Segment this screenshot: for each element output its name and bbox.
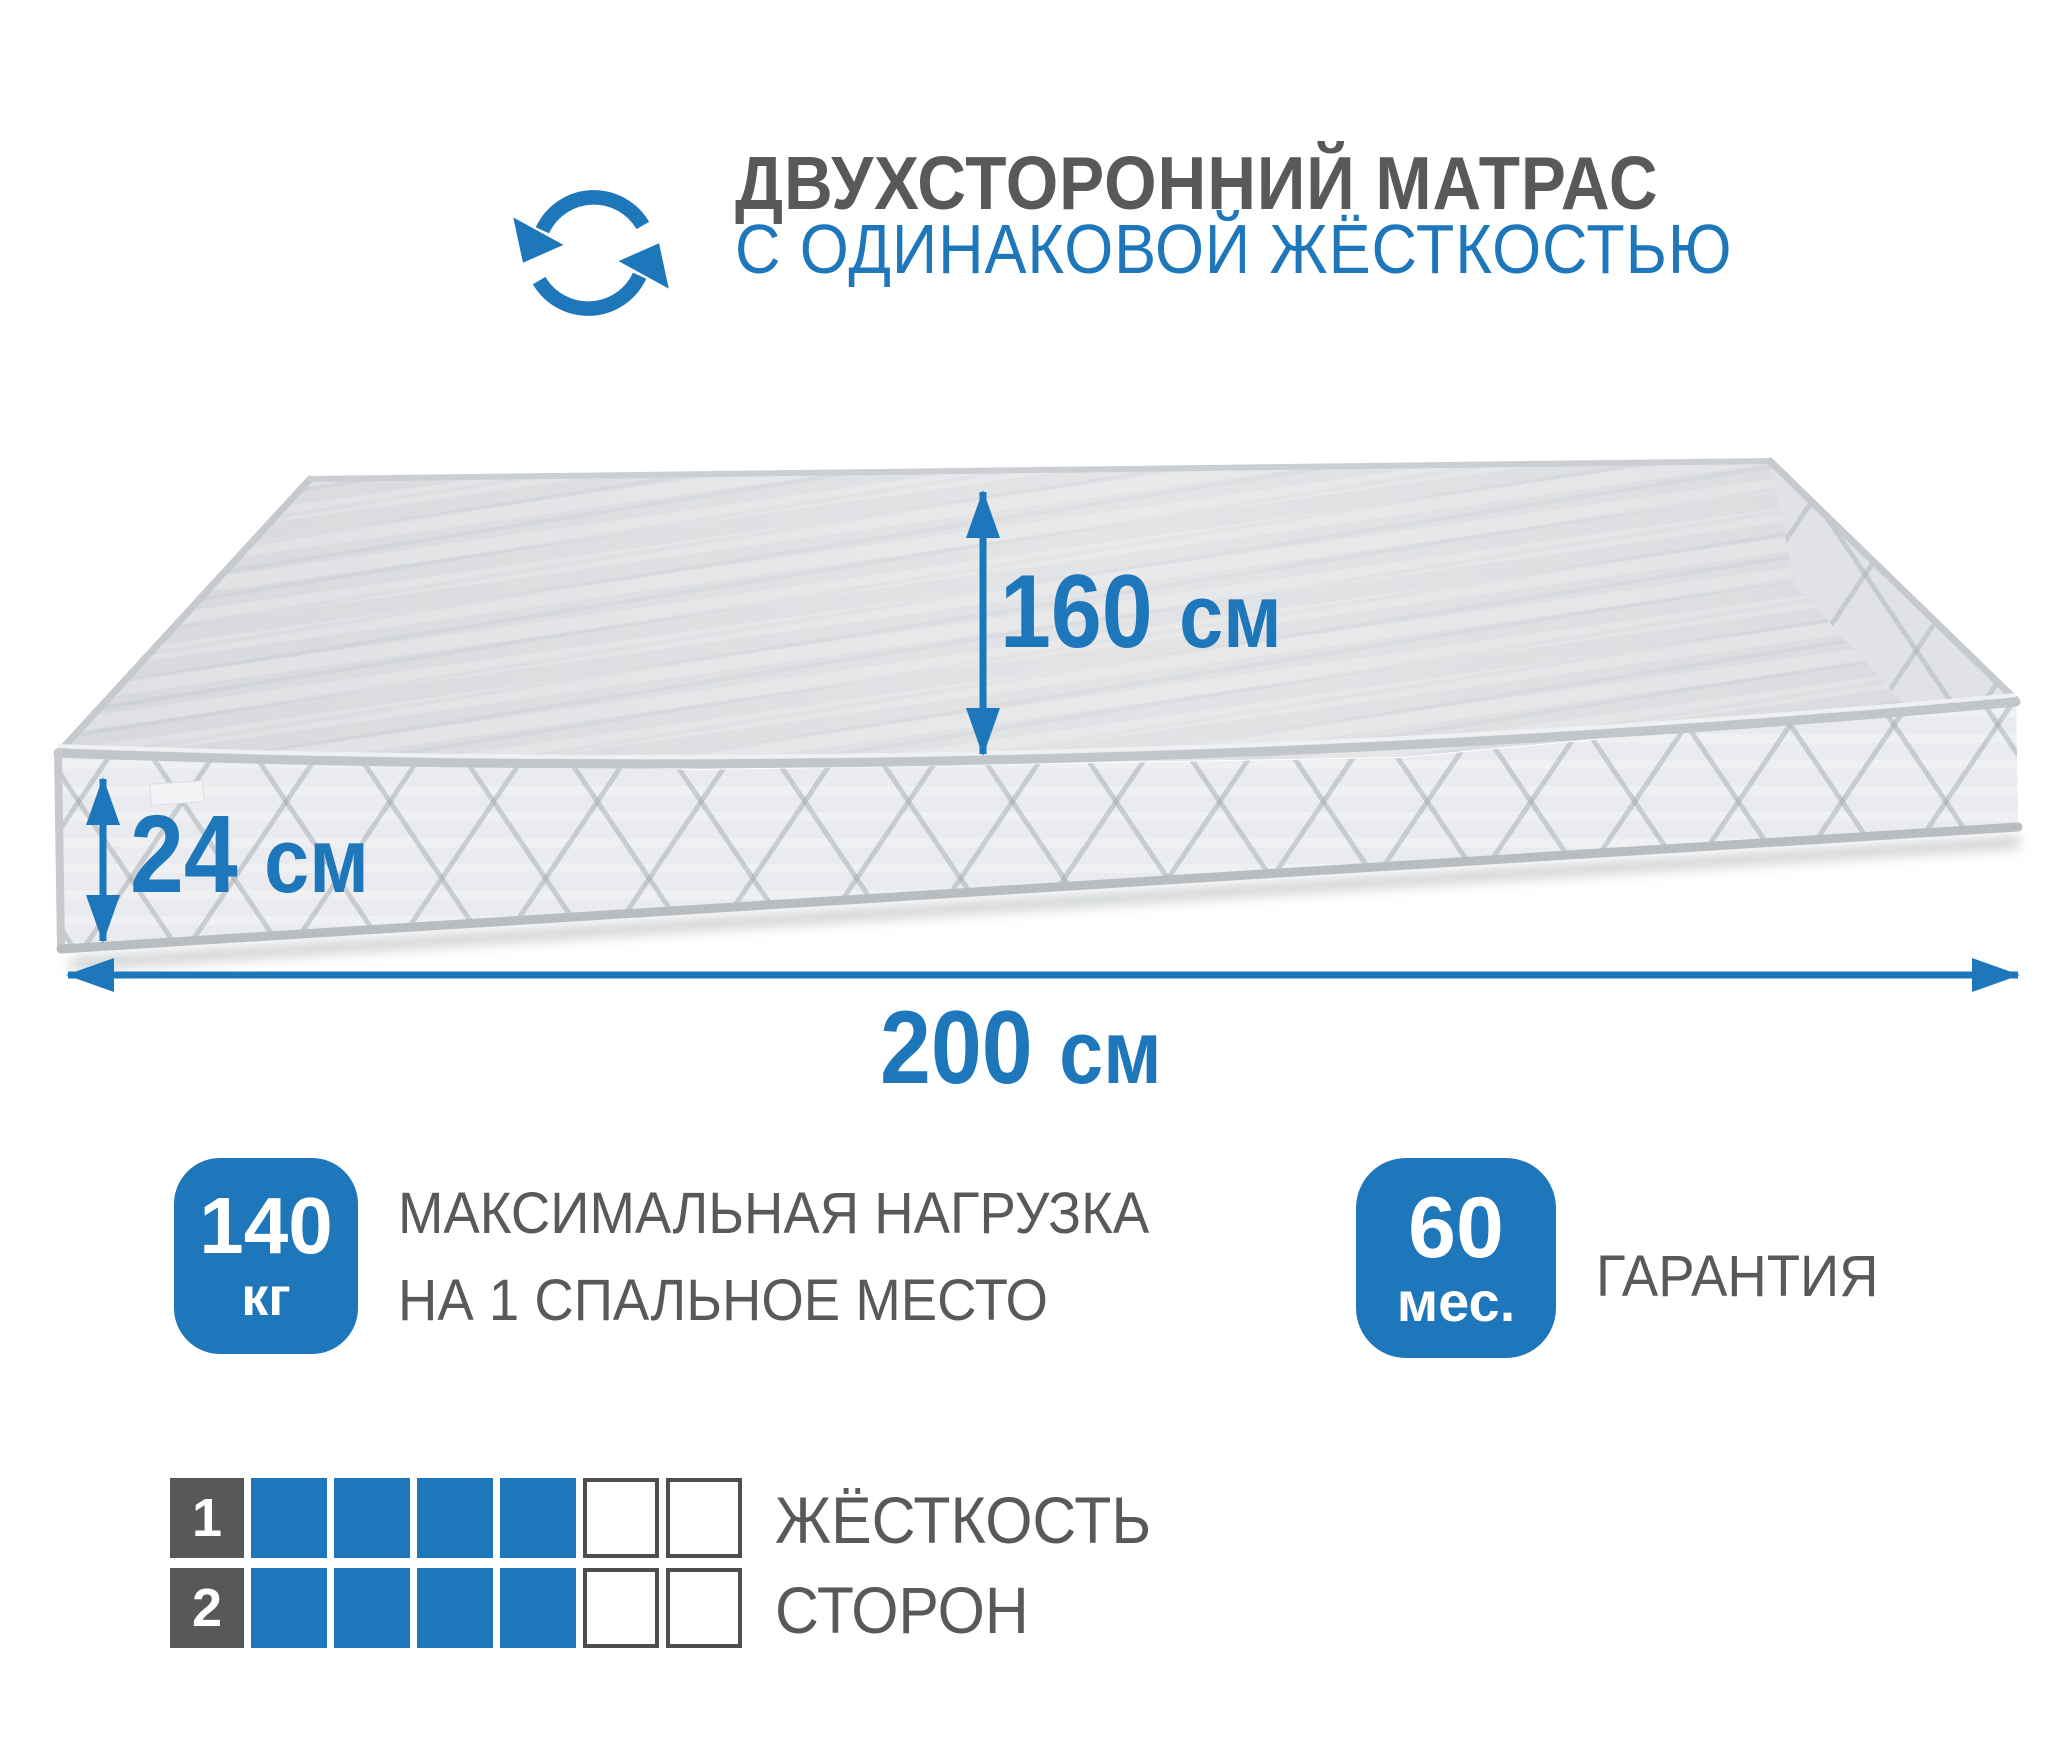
firmness-filled-square (251, 1478, 327, 1558)
dimension-top-width-value: 160 (1000, 560, 1153, 664)
dimension-thickness: 24 см (130, 800, 369, 910)
firmness-squares (251, 1478, 742, 1558)
dimension-length-value: 200 (880, 996, 1033, 1100)
max-load-value: 140 (199, 1188, 332, 1264)
firmness-row-side-2: 2 (170, 1568, 742, 1648)
max-load-caption: МАКСИМАЛЬНАЯ НАГРУЗКА НА 1 СПАЛЬНОЕ МЕСТ… (398, 1170, 1149, 1344)
max-load-badge: 140 кг (174, 1158, 358, 1354)
firmness-filled-square (500, 1568, 576, 1648)
firmness-empty-square (666, 1478, 742, 1558)
firmness-caption-line1: ЖЁСТКОСТЬ (775, 1487, 1151, 1553)
dimension-length: 200 см (880, 996, 1162, 1100)
firmness-caption-line2: СТОРОН (775, 1577, 1029, 1643)
warranty-value: 60 (1408, 1188, 1504, 1270)
warranty-caption: ГАРАНТИЯ (1596, 1233, 1879, 1320)
max-load-unit: кг (241, 1272, 291, 1323)
max-load-caption-line2: НА 1 СПАЛЬНОЕ МЕСТО (398, 1257, 1149, 1344)
dimension-length-unit: см (1059, 1008, 1162, 1098)
firmness-filled-square (334, 1478, 410, 1558)
warranty-unit: мес. (1397, 1275, 1516, 1328)
firmness-side-number: 1 (170, 1478, 244, 1558)
warranty-badge: 60 мес. (1356, 1158, 1556, 1358)
firmness-filled-square (500, 1478, 576, 1558)
firmness-filled-square (417, 1478, 493, 1558)
dimension-thickness-value: 24 (130, 800, 238, 910)
mattress-infographic: ДВУХСТОРОННИЙ МАТРАС С ОДИНАКОВОЙ ЖЁСТКО… (0, 0, 2048, 1757)
page-subtitle: С ОДИНАКОВОЙ ЖЁСТКОСТЬЮ (735, 214, 1732, 284)
dimension-top-width-unit: см (1179, 572, 1282, 662)
firmness-row-side-1: 1 (170, 1478, 742, 1558)
dimension-top-width: 160 см (1000, 560, 1282, 664)
firmness-filled-square (417, 1568, 493, 1648)
firmness-filled-square (251, 1568, 327, 1648)
firmness-empty-square (583, 1478, 659, 1558)
max-load-caption-line1: МАКСИМАЛЬНАЯ НАГРУЗКА (398, 1170, 1149, 1257)
firmness-empty-square (583, 1568, 659, 1648)
firmness-empty-square (666, 1568, 742, 1648)
firmness-filled-square (334, 1568, 410, 1648)
firmness-side-number: 2 (170, 1568, 244, 1648)
dimension-thickness-unit: см (264, 815, 369, 907)
firmness-squares (251, 1568, 742, 1648)
rotate-arrows-icon (505, 172, 677, 334)
